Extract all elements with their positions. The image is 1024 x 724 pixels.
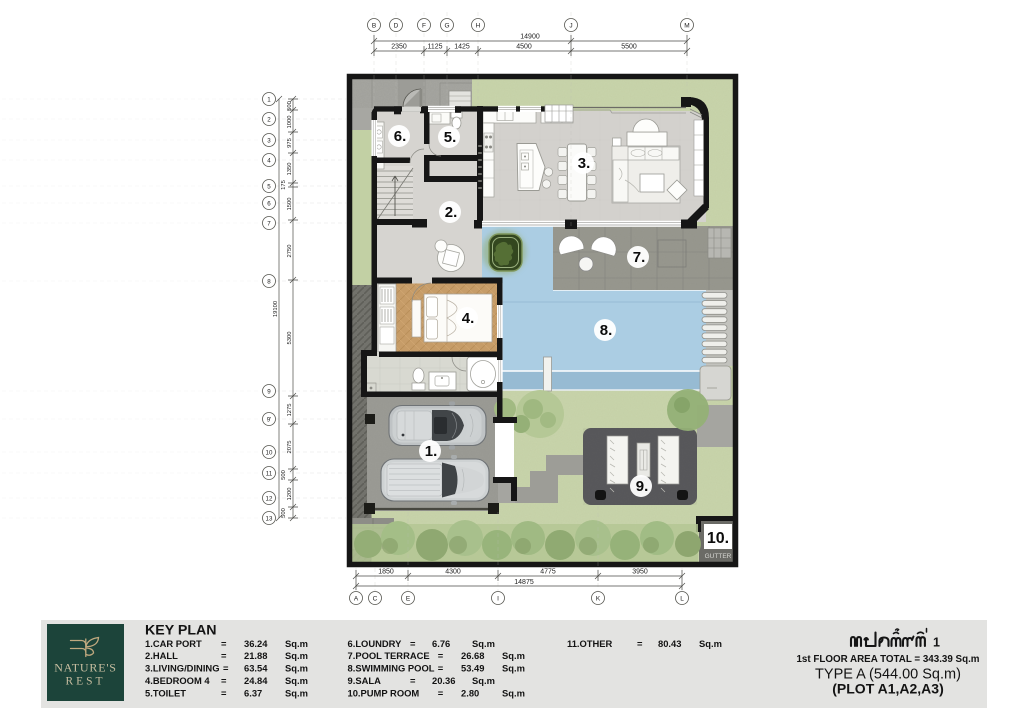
svg-text:2.: 2.: [445, 204, 458, 221]
svg-text:Sq.m: Sq.m: [502, 663, 525, 674]
svg-text:7: 7: [267, 221, 271, 228]
svg-text:10: 10: [266, 450, 273, 457]
svg-text:9.SALA: 9.SALA: [348, 675, 382, 686]
svg-text:1.CAR PORT: 1.CAR PORT: [145, 638, 202, 649]
svg-text:=: =: [438, 663, 444, 674]
svg-text:Sq.m: Sq.m: [502, 650, 525, 661]
svg-text:1350: 1350: [287, 163, 293, 176]
svg-text:14900: 14900: [520, 34, 540, 41]
svg-text:M: M: [684, 23, 689, 30]
svg-text:3: 3: [267, 138, 271, 145]
svg-text:Sq.m: Sq.m: [285, 675, 308, 686]
svg-text:KEY PLAN: KEY PLAN: [145, 623, 216, 639]
svg-text:2750: 2750: [287, 245, 293, 258]
svg-text:GUTTER: GUTTER: [705, 553, 732, 560]
svg-text:J: J: [569, 23, 572, 30]
svg-text:53.49: 53.49: [461, 663, 484, 674]
svg-text:6.LOUNDRY: 6.LOUNDRY: [348, 638, 403, 649]
svg-text:1275: 1275: [287, 404, 293, 417]
svg-text:Sq.m: Sq.m: [699, 638, 722, 649]
svg-text:5.TOILET: 5.TOILET: [145, 688, 186, 699]
svg-text:8.: 8.: [600, 322, 613, 339]
svg-text:4500: 4500: [516, 44, 532, 51]
svg-text:500: 500: [281, 470, 287, 480]
svg-text:6: 6: [267, 201, 271, 208]
svg-text:2075: 2075: [287, 441, 293, 454]
svg-text:=: =: [223, 663, 229, 674]
svg-text:4.: 4.: [462, 310, 475, 327]
svg-text:20.36: 20.36: [432, 675, 455, 686]
svg-text:5: 5: [267, 184, 271, 191]
svg-text:2: 2: [267, 117, 271, 124]
svg-text:H: H: [476, 23, 481, 30]
svg-text:500: 500: [281, 508, 287, 518]
svg-text:=: =: [438, 688, 444, 699]
svg-text:G: G: [444, 23, 449, 30]
svg-text:7.: 7.: [633, 249, 646, 266]
svg-text:4: 4: [267, 158, 271, 165]
svg-text:6.76: 6.76: [432, 638, 450, 649]
svg-text:1425: 1425: [454, 44, 470, 51]
svg-text:D: D: [394, 23, 399, 30]
svg-text:9: 9: [267, 389, 271, 396]
svg-text:A: A: [354, 596, 359, 603]
svg-text:8: 8: [267, 279, 271, 286]
svg-text:=: =: [221, 675, 227, 686]
svg-text:I: I: [497, 596, 499, 603]
svg-text:REST: REST: [65, 676, 105, 688]
svg-text:F: F: [422, 23, 426, 30]
svg-text:Sq.m: Sq.m: [472, 675, 495, 686]
svg-text:6.37: 6.37: [244, 688, 262, 699]
svg-text:Sq.m: Sq.m: [285, 688, 308, 699]
svg-text:2.80: 2.80: [461, 688, 479, 699]
svg-text:1: 1: [933, 636, 940, 650]
svg-text:Sq.m: Sq.m: [472, 638, 495, 649]
svg-text:13: 13: [266, 516, 273, 523]
svg-text:1200: 1200: [287, 488, 293, 501]
svg-text:12: 12: [266, 496, 273, 503]
svg-text:1125: 1125: [427, 44, 442, 51]
svg-text:NATURE'S: NATURE'S: [54, 661, 117, 675]
svg-text:3.: 3.: [578, 155, 591, 172]
svg-text:Sq.m: Sq.m: [285, 638, 308, 649]
svg-text:=: =: [221, 638, 227, 649]
svg-text:21.88: 21.88: [244, 650, 267, 661]
svg-text:63.54: 63.54: [244, 663, 268, 674]
svg-text:10.PUMP ROOM: 10.PUMP ROOM: [348, 688, 420, 699]
svg-text:80.43: 80.43: [658, 638, 681, 649]
svg-text:6.: 6.: [394, 128, 407, 145]
svg-text:Sq.m: Sq.m: [502, 688, 525, 699]
svg-text:11: 11: [266, 471, 273, 478]
svg-text:975: 975: [287, 138, 293, 148]
svg-text:=: =: [438, 650, 444, 661]
svg-text:=: =: [410, 638, 416, 649]
svg-text:11.OTHER: 11.OTHER: [567, 638, 613, 649]
svg-text:1000: 1000: [287, 116, 293, 129]
svg-text:B: B: [372, 23, 376, 30]
svg-text:3950: 3950: [632, 569, 648, 576]
svg-text:4.BEDROOM 4: 4.BEDROOM 4: [145, 675, 210, 686]
svg-text:=: =: [637, 638, 643, 649]
svg-text:1: 1: [267, 97, 271, 104]
svg-text:26.68: 26.68: [461, 650, 484, 661]
svg-text:E: E: [406, 596, 411, 603]
svg-text:4775: 4775: [540, 569, 556, 576]
svg-text:14875: 14875: [514, 579, 534, 586]
svg-text:1500: 1500: [287, 198, 293, 211]
svg-text:=: =: [221, 688, 227, 699]
svg-text:2.HALL: 2.HALL: [145, 650, 178, 661]
svg-text:5500: 5500: [621, 44, 637, 51]
svg-text:8.SWIMMING POOL: 8.SWIMMING POOL: [348, 663, 435, 674]
svg-text:4300: 4300: [445, 569, 461, 576]
svg-text:36.24: 36.24: [244, 638, 268, 649]
svg-text:(PLOT A1,A2,A3): (PLOT A1,A2,A3): [832, 681, 944, 697]
svg-text:L: L: [680, 596, 684, 603]
svg-text:2350: 2350: [391, 44, 407, 51]
svg-text:1st FLOOR AREA TOTAL = 343.39: 1st FLOOR AREA TOTAL = 343.39 Sq.m: [796, 654, 979, 665]
svg-text:175: 175: [281, 180, 287, 190]
svg-text:9.: 9.: [636, 478, 649, 495]
svg-text:10.: 10.: [707, 530, 729, 547]
svg-text:Sq.m: Sq.m: [285, 650, 308, 661]
svg-text:=: =: [221, 650, 227, 661]
svg-text:=: =: [410, 675, 416, 686]
svg-text:24.84: 24.84: [244, 675, 268, 686]
svg-text:5.: 5.: [444, 129, 457, 146]
svg-text:3.LIVING/DINING: 3.LIVING/DINING: [145, 663, 220, 674]
svg-text:9': 9': [267, 417, 272, 424]
svg-text:5300: 5300: [287, 332, 293, 345]
svg-text:C: C: [373, 596, 378, 603]
svg-text:500: 500: [287, 101, 293, 111]
svg-text:1.: 1.: [425, 443, 438, 460]
svg-text:K: K: [596, 596, 601, 603]
svg-text:1850: 1850: [378, 569, 394, 576]
svg-text:Sq.m: Sq.m: [285, 663, 308, 674]
svg-text:7.POOL TERRACE: 7.POOL TERRACE: [348, 650, 430, 661]
svg-text:19100: 19100: [273, 301, 279, 317]
